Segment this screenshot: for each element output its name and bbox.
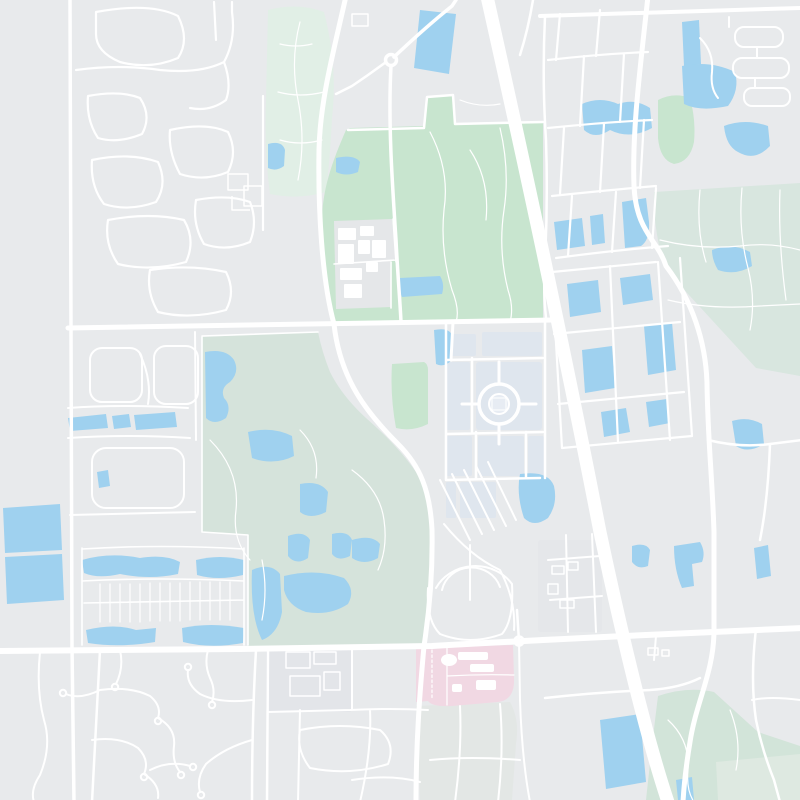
big-lake-lower: [5, 554, 64, 604]
pond: [336, 157, 360, 175]
map-viewport[interactable]: [0, 0, 800, 800]
lake-row: [112, 414, 131, 429]
pond: [97, 470, 110, 488]
golf-lake: [300, 483, 328, 516]
pond: [268, 143, 285, 170]
mall-center-building: [489, 394, 509, 414]
greenbelt-corner-light: [716, 754, 800, 800]
pond: [582, 346, 615, 393]
commercial-area-bottomleft: [266, 650, 352, 712]
pond: [646, 399, 670, 427]
lake: [582, 100, 652, 135]
golf-lake: [332, 533, 352, 559]
lake-row: [134, 412, 177, 430]
pond: [567, 280, 601, 317]
long-lake: [196, 557, 244, 578]
pond: [620, 274, 653, 305]
pond: [590, 214, 605, 245]
golf-lake: [288, 534, 310, 562]
long-lake: [82, 555, 180, 577]
big-lake-upper: [3, 504, 62, 553]
pond: [632, 545, 650, 568]
mall-access-road: [451, 322, 453, 360]
pond: [754, 545, 771, 579]
lake: [682, 64, 736, 109]
golf-lake: [248, 430, 294, 462]
park-patch-south: [392, 362, 429, 429]
long-lake: [182, 625, 244, 646]
pond: [644, 322, 676, 375]
pond: [399, 276, 443, 297]
pond: [601, 408, 630, 437]
pond: [682, 20, 701, 66]
long-lake: [86, 627, 156, 646]
map-canvas[interactable]: [0, 0, 800, 800]
golf-lake: [352, 538, 380, 562]
